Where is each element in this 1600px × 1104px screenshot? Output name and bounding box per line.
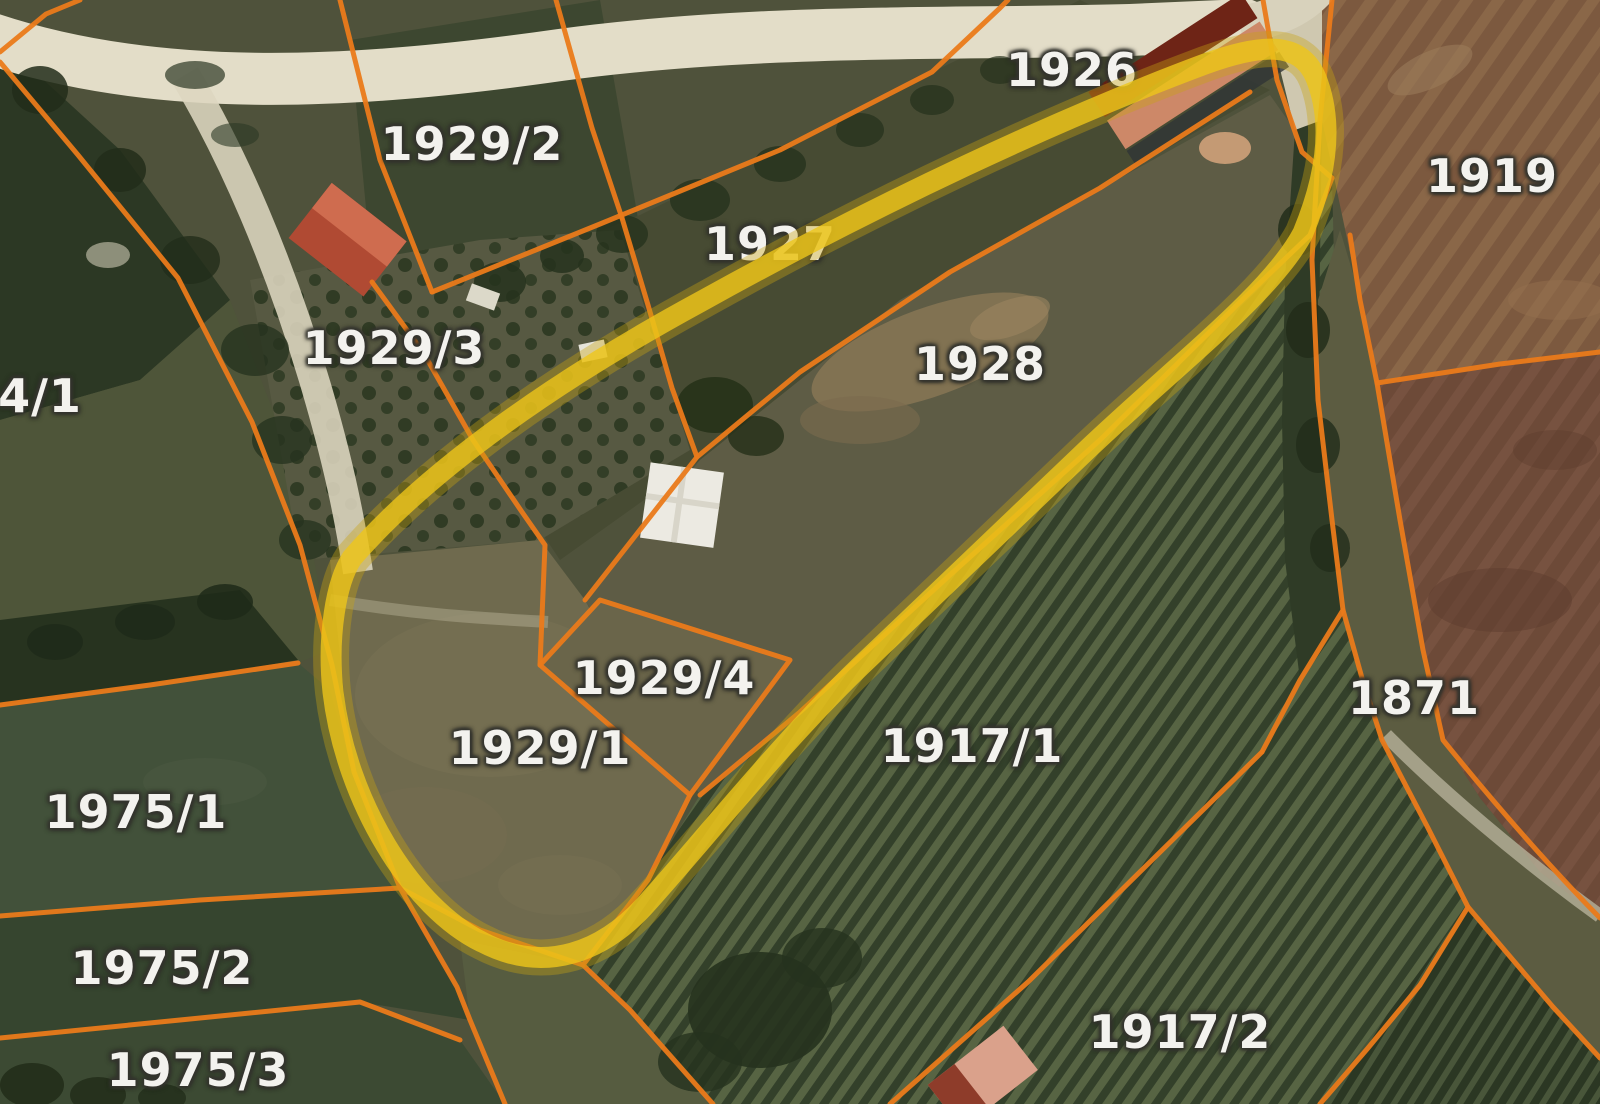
satellite-base-layer xyxy=(0,0,1600,1104)
sand-patch xyxy=(1199,132,1251,164)
map-viewport[interactable]: 1929/2 1926 1919 1927 1929/3 1928 4/1 19… xyxy=(0,0,1600,1104)
